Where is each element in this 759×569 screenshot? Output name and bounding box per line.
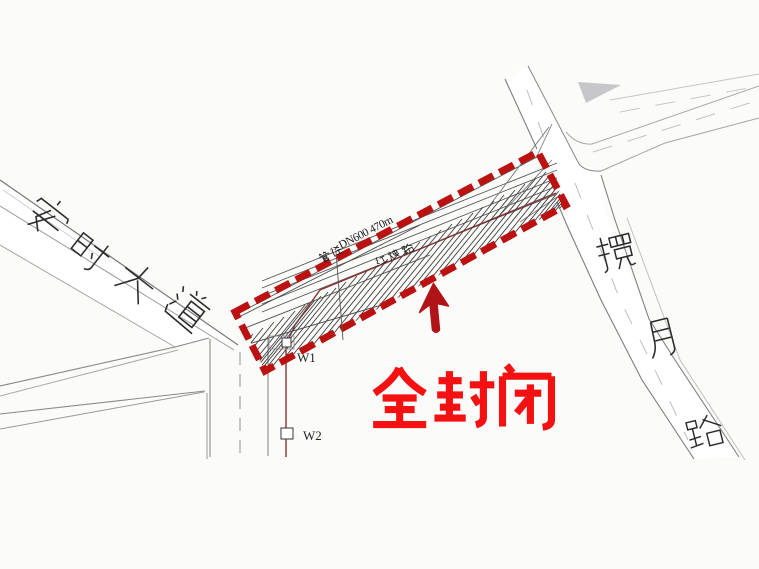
svg-text:W2: W2	[303, 428, 322, 443]
svg-text:W1: W1	[297, 350, 316, 365]
